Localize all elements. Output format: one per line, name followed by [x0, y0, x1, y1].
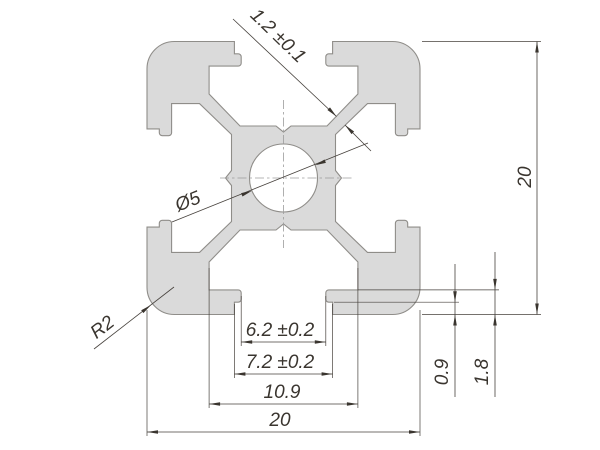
dim-label-lip-height: 1.8: [472, 358, 493, 385]
dim-label-slot-cavity: 10.9: [264, 382, 301, 403]
dim-label-slot-opening: 6.2 ±0.2: [246, 320, 315, 341]
dim-label-lip-step: 0.9: [432, 358, 453, 385]
dim-label-corner-radius: R2: [87, 312, 119, 344]
technical-drawing: 6.2 ±0.2 7.2 ±0.2 10.9 20 20 0.9 1.8 1.2…: [0, 0, 600, 450]
dim-label-overall-height: 20: [515, 166, 536, 189]
dim-label-web-thickness: 1.2 ±0.1: [246, 5, 310, 68]
dim-label-slot-step: 7.2 ±0.2: [246, 352, 315, 373]
drawing-canvas: 6.2 ±0.2 7.2 ±0.2 10.9 20 20 0.9 1.8 1.2…: [0, 0, 600, 450]
dim-label-hole-diameter: Ø5: [171, 187, 204, 217]
dim-label-overall-width: 20: [268, 410, 291, 431]
